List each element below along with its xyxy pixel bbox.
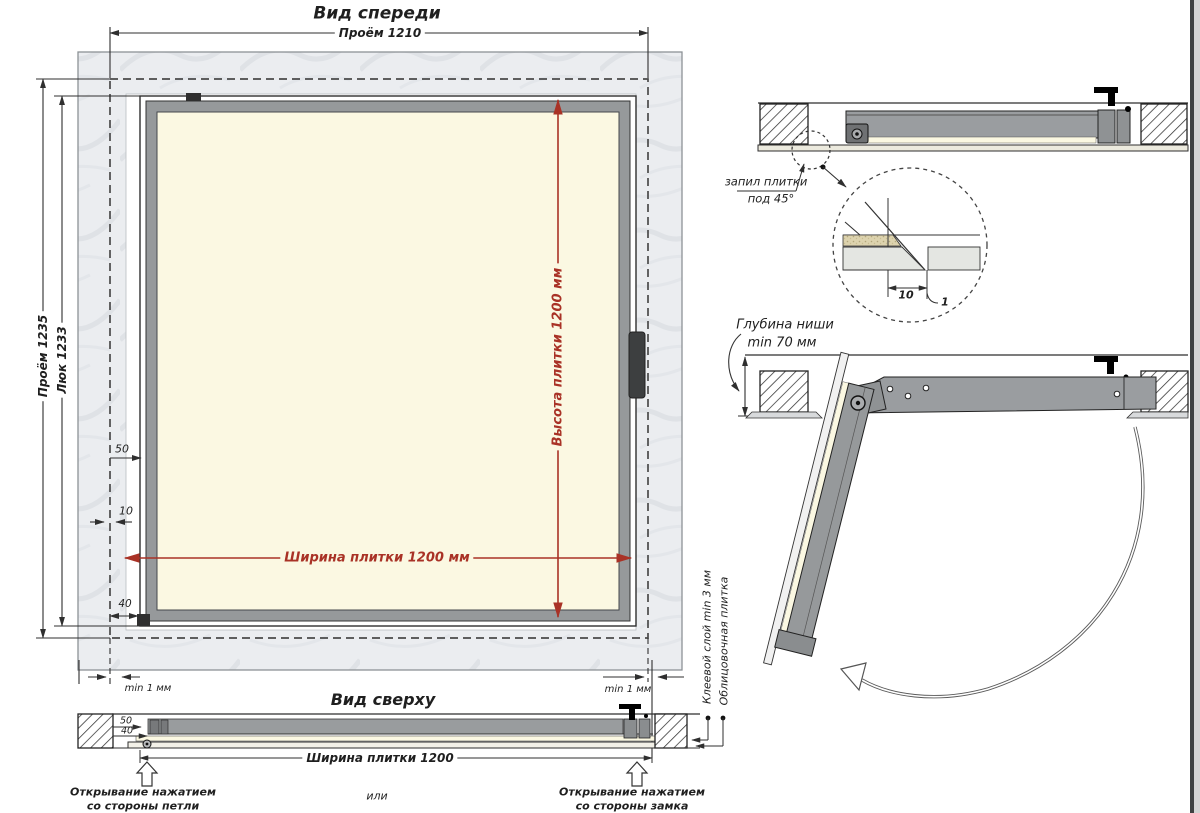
niche-depth-label-line2: min 70 мм — [748, 337, 817, 350]
layer-leaders — [692, 716, 725, 746]
swing-arc — [862, 427, 1143, 697]
dim-40: 40 — [118, 599, 131, 610]
wall-section-right — [655, 714, 687, 748]
detail-dim-10: 10 — [898, 290, 913, 301]
swing-arrowhead-icon — [841, 663, 866, 690]
open-hinge-label-line1: Открывание нажатием — [70, 787, 216, 798]
hinge-body-icon — [150, 720, 159, 734]
dim-50: 50 — [115, 444, 129, 455]
wall-section-left — [78, 714, 113, 748]
dim-min-gap-left: min 1 мм — [125, 684, 172, 694]
frame-bar — [852, 377, 1156, 413]
tile-face-band — [758, 145, 1188, 151]
wall-section-right — [1141, 104, 1187, 144]
lock-body-icon — [624, 719, 637, 738]
top-view-title: Вид сверху — [331, 692, 436, 708]
frame-profile — [148, 719, 623, 734]
or-label: или — [366, 791, 387, 802]
drawing-canvas — [0, 0, 1200, 813]
section-open — [729, 334, 1188, 697]
open-hinge-label-line2: со стороны петли — [87, 801, 199, 812]
front-view-title: Вид спереди — [313, 6, 440, 23]
hinge-mark-bottom-icon — [137, 614, 150, 626]
tile-cut-label-line1: запил плитки — [725, 176, 808, 188]
lock-handle-icon — [629, 332, 645, 398]
dim-10: 10 — [119, 506, 133, 517]
dim-hatch-height: Люк 1233 — [56, 322, 68, 397]
wall-section-left — [760, 104, 808, 144]
open-lock-label-line2: со стороны замка — [576, 801, 689, 812]
lock-latch-icon — [1094, 356, 1118, 362]
lock-body-icon — [1098, 110, 1115, 143]
dim-opening-width: Проём 1210 — [335, 27, 425, 39]
open-lock-label-line1: Открывание нажатием — [559, 787, 705, 798]
front-view — [36, 27, 684, 758]
adhesive-layer — [136, 736, 655, 741]
push-open-arrow-left-icon — [137, 762, 157, 786]
hinge-body2-icon — [161, 720, 168, 734]
wall-section-left — [760, 371, 808, 412]
tv-dim-tile-width: Ширина плитки 1200 — [302, 752, 457, 764]
niche-depth-label-line1: Глубина ниши — [736, 319, 834, 332]
facing-tile-label: Облицовочная плитка — [719, 577, 730, 706]
right-edge-strip-light — [1194, 0, 1200, 813]
detail-dim-1: 1 — [941, 297, 949, 308]
tile-cut-label-line2: под 45° — [748, 193, 795, 205]
facing-tile-layer — [128, 742, 655, 748]
hinge-mark-top-icon — [186, 93, 201, 101]
dim-tile-height: Высота плитки 1200 мм — [552, 264, 565, 451]
dim-tile-width: Ширина плитки 1200 мм — [280, 552, 473, 565]
tv-dim-40: 40 — [121, 726, 133, 736]
push-open-arrow-right-icon — [627, 762, 647, 786]
drawing-sheet: Вид спереди Проём 1210 Проём 1235 Люк 12… — [0, 0, 1200, 813]
section-closed — [737, 87, 1188, 322]
adhesive-layer — [863, 137, 1096, 143]
dim-min-gap-right: min 1 мм — [605, 685, 652, 695]
dim-opening-height: Проём 1235 — [37, 311, 49, 401]
top-view — [78, 704, 725, 786]
adhesive-layer-label: Клеевой слой min 3 мм — [702, 570, 713, 704]
